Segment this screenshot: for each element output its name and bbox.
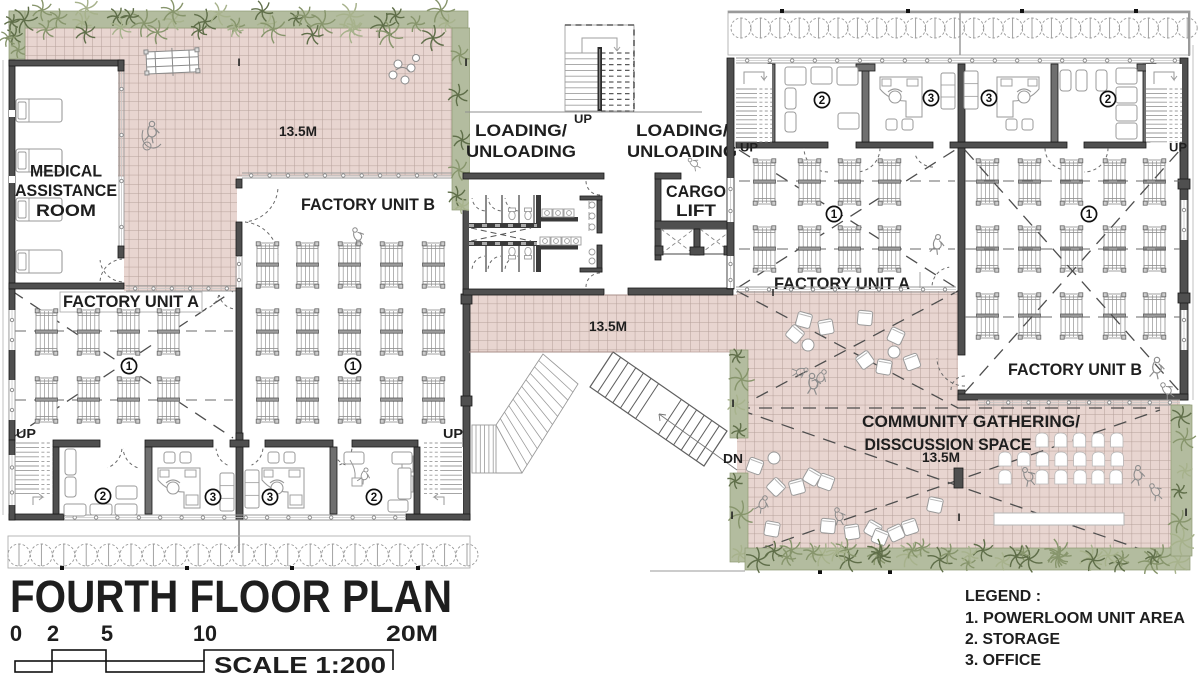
svg-text:I: I: [464, 57, 467, 69]
svg-text:UP: UP: [574, 112, 592, 126]
svg-text:1: 1: [350, 361, 357, 373]
svg-text:I: I: [237, 57, 240, 69]
svg-text:COMMUNITY GATHERING/: COMMUNITY GATHERING/: [862, 412, 1080, 431]
svg-text:UP: UP: [443, 427, 463, 441]
svg-text:1. POWERLOOM UNIT AREA: 1. POWERLOOM UNIT AREA: [965, 610, 1185, 627]
svg-text:I: I: [772, 288, 775, 299]
svg-text:CARGO: CARGO: [666, 183, 726, 201]
svg-text:2: 2: [371, 492, 377, 504]
svg-text:3. OFFICE: 3. OFFICE: [965, 652, 1041, 669]
svg-text:3: 3: [210, 492, 216, 504]
svg-text:3: 3: [267, 492, 273, 504]
svg-text:FACTORY UNIT A: FACTORY UNIT A: [63, 292, 199, 311]
svg-text:LIFT: LIFT: [676, 202, 716, 220]
svg-text:UNLOADING: UNLOADING: [466, 143, 576, 161]
svg-text:2: 2: [819, 95, 825, 107]
svg-text:10: 10: [193, 621, 217, 646]
svg-text:FACTORY UNIT B: FACTORY UNIT B: [301, 195, 435, 214]
svg-text:1: 1: [1086, 209, 1093, 221]
svg-text:FOURTH FLOOR PLAN: FOURTH FLOOR PLAN: [10, 571, 452, 622]
svg-text:13.5M: 13.5M: [279, 124, 317, 139]
svg-text:20M: 20M: [386, 621, 438, 646]
svg-text:FACTORY UNIT B: FACTORY UNIT B: [1008, 360, 1142, 379]
svg-text:ASSISTANCE: ASSISTANCE: [15, 181, 117, 200]
svg-text:DN: DN: [723, 451, 743, 466]
svg-text:UNLOADING: UNLOADING: [627, 143, 737, 161]
svg-text:I: I: [1184, 507, 1187, 519]
svg-text:I: I: [957, 512, 960, 524]
svg-text:UP: UP: [740, 141, 758, 155]
svg-text:2. STORAGE: 2. STORAGE: [965, 631, 1060, 648]
svg-text:0: 0: [10, 621, 22, 646]
svg-text:5: 5: [101, 621, 113, 646]
svg-text:LEGEND :: LEGEND :: [965, 588, 1041, 605]
svg-text:LOADING/: LOADING/: [475, 122, 567, 140]
svg-text:2: 2: [47, 621, 59, 646]
svg-text:SCALE 1:200: SCALE 1:200: [214, 652, 386, 678]
svg-text:3: 3: [986, 93, 992, 105]
svg-text:I: I: [730, 510, 733, 522]
svg-text:UP: UP: [16, 427, 36, 441]
svg-text:ROOM: ROOM: [36, 201, 96, 220]
svg-text:2: 2: [100, 491, 106, 503]
svg-text:13.5M: 13.5M: [589, 319, 627, 334]
svg-text:3: 3: [928, 93, 934, 105]
svg-text:2: 2: [1105, 94, 1111, 106]
svg-text:1: 1: [831, 209, 838, 221]
svg-text:MEDICAL: MEDICAL: [30, 162, 102, 181]
svg-text:1: 1: [126, 361, 133, 373]
svg-text:13.5M: 13.5M: [922, 450, 960, 465]
svg-text:FACTORY UNIT A: FACTORY UNIT A: [774, 274, 910, 293]
svg-text:I: I: [731, 398, 734, 410]
svg-text:LOADING/: LOADING/: [636, 122, 728, 140]
